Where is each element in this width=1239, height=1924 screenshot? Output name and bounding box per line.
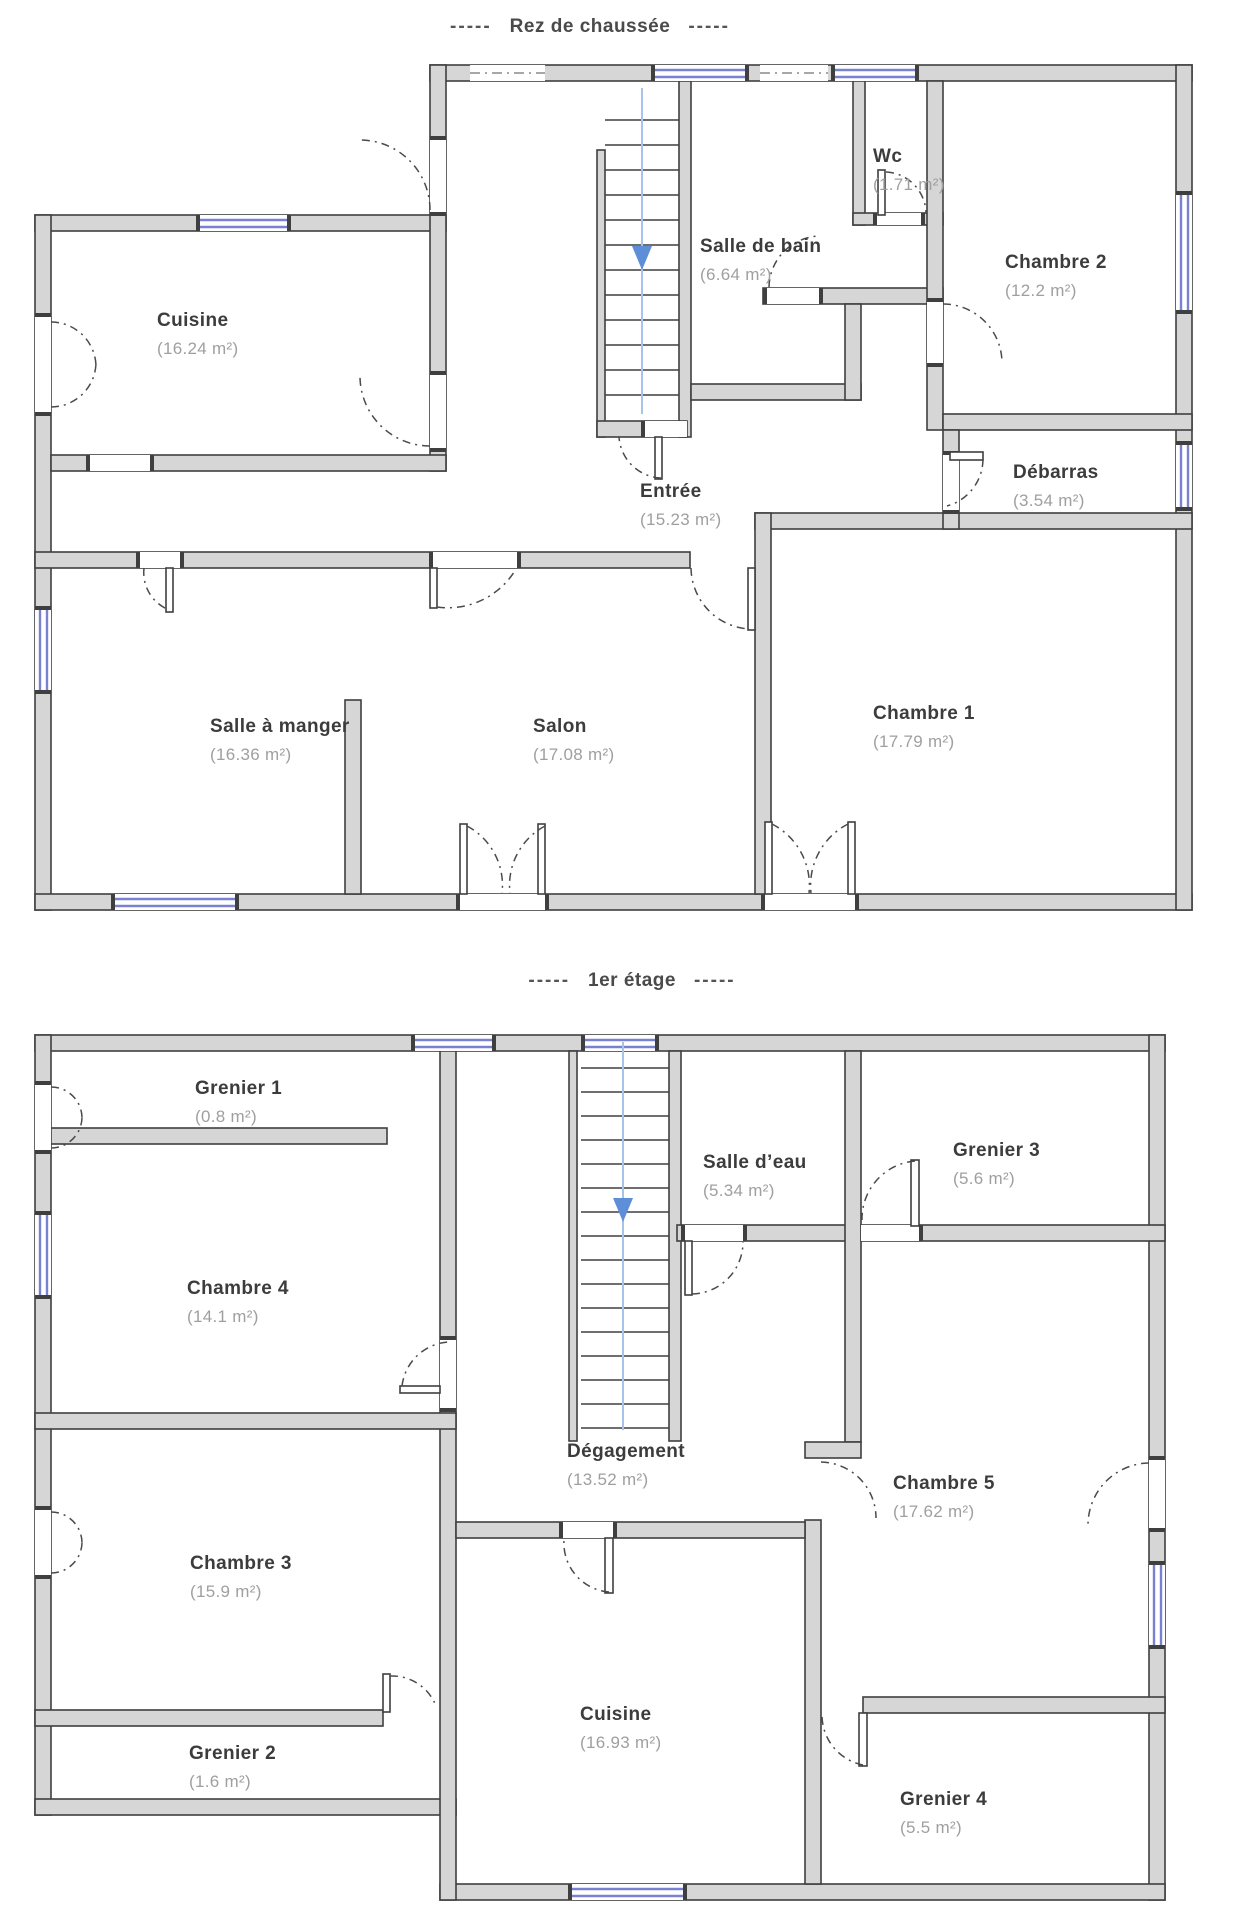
- room-label-cuisine-rdc: Cuisine (16.24 m²): [157, 310, 238, 360]
- room-label-cuisine-etage: Cuisine (16.93 m²): [580, 1704, 661, 1754]
- labels-layer: ----- Rez de chaussée ----- Cuisine (16.…: [0, 0, 1239, 1924]
- room-label-salle-a-manger: Salle à manger (16.36 m²): [210, 716, 350, 766]
- title-dashes: -----: [450, 16, 492, 38]
- room-label-salle-de-bain: Salle de bain (6.64 m²): [700, 236, 821, 286]
- room-label-entree: Entrée (15.23 m²): [640, 481, 721, 531]
- room-label-degagement: Dégagement (13.52 m²): [567, 1441, 685, 1491]
- room-label-salon: Salon (17.08 m²): [533, 716, 614, 766]
- title-dashes: -----: [688, 16, 730, 38]
- floor-title-text: 1er étage: [588, 970, 676, 992]
- room-label-chambre-4: Chambre 4 (14.1 m²): [187, 1278, 289, 1328]
- room-label-chambre-5: Chambre 5 (17.62 m²): [893, 1473, 995, 1523]
- room-label-grenier-2: Grenier 2 (1.6 m²): [189, 1743, 276, 1793]
- room-label-grenier-1: Grenier 1 (0.8 m²): [195, 1078, 282, 1128]
- title-dashes: -----: [694, 970, 736, 992]
- floor-title-etage: ----- 1er étage -----: [528, 970, 735, 992]
- room-label-grenier-3: Grenier 3 (5.6 m²): [953, 1140, 1040, 1190]
- room-label-chambre-1: Chambre 1 (17.79 m²): [873, 703, 975, 753]
- title-dashes: -----: [528, 970, 570, 992]
- floor-title-text: Rez de chaussée: [510, 16, 671, 38]
- room-label-debarras: Débarras (3.54 m²): [1013, 462, 1099, 512]
- room-label-grenier-4: Grenier 4 (5.5 m²): [900, 1789, 987, 1839]
- floorplan-page: ----- Rez de chaussée ----- Cuisine (16.…: [0, 0, 1239, 1924]
- room-label-salle-d-eau: Salle d’eau (5.34 m²): [703, 1152, 807, 1202]
- floor-title-rdc: ----- Rez de chaussée -----: [450, 16, 730, 38]
- room-label-wc: Wc (1.71 m²): [873, 146, 945, 196]
- room-label-chambre-2: Chambre 2 (12.2 m²): [1005, 252, 1107, 302]
- room-label-chambre-3: Chambre 3 (15.9 m²): [190, 1553, 292, 1603]
